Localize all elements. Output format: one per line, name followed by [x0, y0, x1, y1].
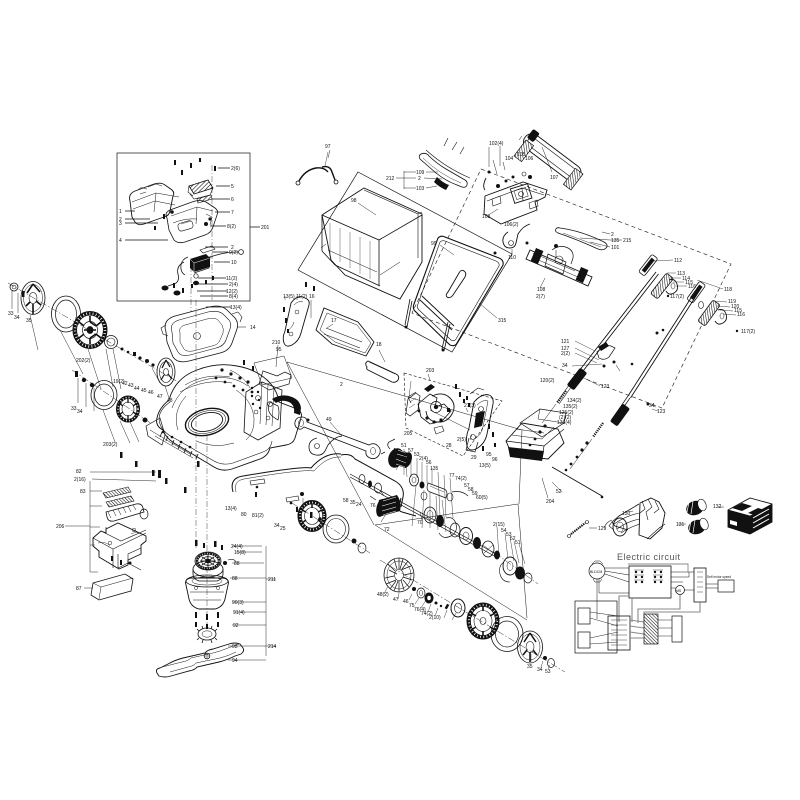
svg-text:103: 103 — [416, 186, 425, 192]
svg-text:76: 76 — [370, 503, 376, 509]
svg-text:135: 135 — [430, 466, 439, 472]
svg-text:49: 49 — [326, 417, 332, 423]
svg-text:2(16): 2(16) — [74, 477, 86, 483]
svg-text:214: 214 — [268, 644, 277, 650]
svg-text:81(2): 81(2) — [252, 513, 264, 519]
svg-text:2(5): 2(5) — [457, 437, 466, 443]
svg-text:203(2): 203(2) — [103, 442, 118, 448]
svg-text:MS: MS — [676, 589, 682, 593]
svg-text:13(5): 13(5) — [479, 463, 491, 469]
svg-text:2(2): 2(2) — [561, 351, 570, 357]
svg-text:74(2): 74(2) — [455, 476, 467, 482]
svg-text:83: 83 — [80, 489, 86, 495]
svg-text:80: 80 — [241, 512, 247, 518]
svg-text:4: 4 — [119, 238, 122, 244]
svg-text:107: 107 — [550, 175, 559, 181]
svg-text:35: 35 — [350, 500, 356, 506]
svg-text:206: 206 — [56, 524, 65, 530]
svg-text:129: 129 — [598, 526, 607, 532]
svg-text:34: 34 — [14, 315, 20, 321]
svg-text:104: 104 — [505, 156, 514, 162]
svg-text:8(2): 8(2) — [227, 224, 236, 230]
svg-text:201: 201 — [261, 225, 270, 231]
svg-text:95: 95 — [486, 452, 492, 458]
svg-text:99: 99 — [431, 241, 437, 247]
svg-text:13(4): 13(4) — [230, 305, 242, 311]
svg-text:116: 116 — [737, 312, 745, 318]
svg-text:BLDCM: BLDCM — [590, 570, 602, 574]
svg-text:202(2): 202(2) — [76, 358, 91, 364]
svg-text:35: 35 — [26, 318, 32, 324]
svg-text:1: 1 — [119, 209, 122, 215]
svg-text:92: 92 — [233, 623, 239, 629]
svg-text:98: 98 — [351, 198, 357, 204]
svg-text:47: 47 — [157, 394, 163, 400]
svg-text:93: 93 — [232, 644, 238, 650]
svg-text:117(2): 117(2) — [670, 294, 684, 300]
svg-text:43: 43 — [128, 383, 134, 389]
svg-text:205: 205 — [404, 431, 413, 437]
svg-text:116: 116 — [688, 284, 696, 290]
svg-text:70: 70 — [417, 520, 423, 526]
svg-text:95: 95 — [276, 347, 282, 353]
svg-text:33: 33 — [8, 311, 14, 317]
svg-text:34: 34 — [537, 667, 543, 673]
svg-text:87: 87 — [76, 586, 82, 592]
svg-text:117(2): 117(2) — [741, 329, 755, 335]
svg-text:108: 108 — [537, 287, 546, 293]
svg-text:58: 58 — [343, 498, 349, 504]
svg-text:210: 210 — [272, 340, 281, 346]
svg-text:203: 203 — [426, 368, 435, 374]
svg-text:135: 135 — [611, 238, 620, 244]
svg-text:34: 34 — [77, 409, 83, 415]
svg-text:2(4): 2(4) — [229, 282, 238, 288]
svg-text:51: 51 — [515, 540, 521, 546]
svg-text:5: 5 — [231, 184, 234, 190]
svg-text:2(6): 2(6) — [231, 166, 240, 172]
svg-text:3: 3 — [119, 221, 122, 227]
svg-text:211: 211 — [268, 577, 276, 583]
svg-text:33: 33 — [71, 406, 77, 412]
svg-text:13(4): 13(4) — [225, 506, 237, 512]
svg-text:131: 131 — [676, 522, 685, 528]
svg-text:88: 88 — [234, 561, 240, 567]
svg-text:34: 34 — [274, 523, 280, 529]
svg-text:130: 130 — [622, 511, 631, 517]
svg-text:48(2): 48(2) — [377, 592, 389, 598]
svg-text:2(10): 2(10) — [429, 615, 441, 621]
svg-text:120(2): 120(2) — [540, 378, 555, 384]
svg-text:60(5): 60(5) — [476, 495, 488, 501]
svg-text:35: 35 — [527, 664, 533, 670]
svg-text:118: 118 — [724, 287, 732, 293]
svg-text:28: 28 — [446, 443, 452, 449]
svg-text:46: 46 — [403, 599, 409, 605]
svg-text:52: 52 — [556, 489, 562, 495]
svg-text:102(4): 102(4) — [489, 141, 504, 147]
svg-text:106: 106 — [525, 156, 534, 162]
svg-text:96: 96 — [492, 457, 498, 463]
svg-text:25: 25 — [280, 526, 286, 532]
svg-text:53: 53 — [545, 669, 551, 675]
svg-text:2(7): 2(7) — [536, 294, 545, 300]
svg-text:77: 77 — [449, 473, 455, 479]
svg-text:17: 17 — [331, 318, 337, 324]
svg-text:15(8): 15(8) — [234, 550, 246, 556]
svg-text:57: 57 — [408, 448, 414, 454]
svg-text:106(2): 106(2) — [504, 222, 519, 228]
svg-text:101: 101 — [611, 245, 620, 251]
svg-text:110: 110 — [508, 255, 516, 261]
svg-text:91(4): 91(4) — [233, 610, 245, 616]
svg-text:Electric circuit: Electric circuit — [617, 552, 681, 562]
svg-text:82: 82 — [76, 469, 82, 475]
svg-text:6: 6 — [231, 197, 234, 203]
svg-text:2: 2 — [340, 382, 343, 388]
svg-text:10: 10 — [231, 260, 237, 266]
svg-text:18: 18 — [376, 342, 382, 348]
svg-text:7: 7 — [231, 210, 234, 216]
svg-text:Self motor speed: Self motor speed — [707, 575, 731, 579]
svg-text:16: 16 — [309, 294, 315, 300]
svg-text:215: 215 — [623, 238, 632, 244]
svg-text:34: 34 — [562, 363, 568, 369]
svg-text:123: 123 — [657, 409, 666, 415]
svg-text:121: 121 — [561, 339, 570, 345]
svg-text:108: 108 — [482, 214, 491, 220]
svg-text:24: 24 — [356, 502, 362, 508]
svg-text:46: 46 — [148, 390, 154, 396]
svg-text:42: 42 — [122, 381, 128, 387]
svg-text:97: 97 — [325, 144, 331, 150]
svg-text:9(2): 9(2) — [229, 250, 238, 256]
svg-text:45: 45 — [141, 388, 147, 394]
svg-text:51: 51 — [401, 443, 407, 449]
svg-text:8(4): 8(4) — [229, 294, 238, 300]
svg-text:72: 72 — [384, 527, 390, 533]
svg-text:29: 29 — [471, 455, 477, 461]
svg-text:94: 94 — [232, 658, 238, 664]
svg-text:88: 88 — [232, 576, 238, 582]
svg-text:212: 212 — [386, 176, 395, 182]
svg-text:132: 132 — [713, 504, 722, 510]
svg-text:123: 123 — [601, 384, 610, 390]
svg-text:14: 14 — [250, 325, 256, 331]
svg-text:90(3): 90(3) — [232, 600, 244, 606]
svg-text:44: 44 — [134, 386, 140, 392]
svg-text:315: 315 — [498, 318, 507, 324]
svg-text:204: 204 — [546, 499, 555, 505]
svg-text:27(3): 27(3) — [464, 403, 476, 409]
svg-text:112: 112 — [674, 258, 682, 264]
svg-text:34: 34 — [649, 403, 655, 409]
svg-text:2: 2 — [418, 176, 421, 182]
svg-text:47: 47 — [393, 597, 399, 603]
